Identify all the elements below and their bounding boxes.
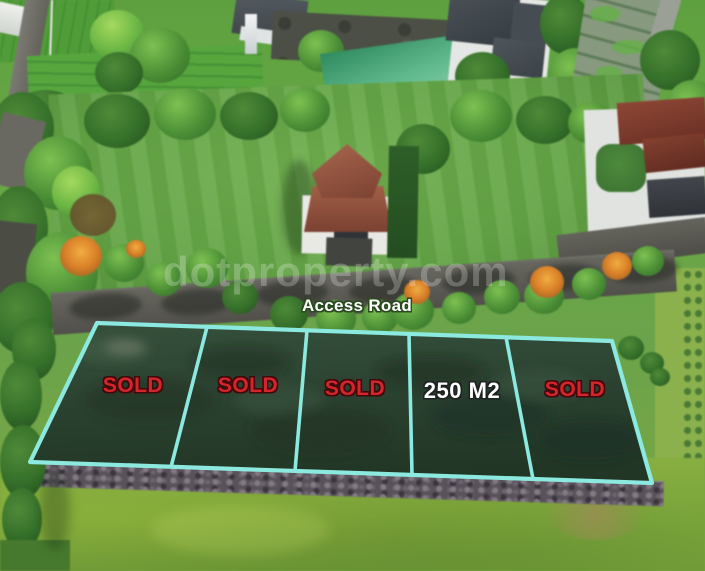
plot-1-status-label: SOLD [103,374,163,398]
plot-boundary-overlay [0,0,705,571]
plot-4-size-label: 250 M2 [424,378,500,404]
plot-5-status-label: SOLD [545,378,605,402]
aerial-photo: dotproperty.com [0,0,705,571]
plot-3-status-label: SOLD [325,377,385,401]
plot-2-status-label: SOLD [218,374,278,398]
access-road-label: Access Road [302,296,412,316]
